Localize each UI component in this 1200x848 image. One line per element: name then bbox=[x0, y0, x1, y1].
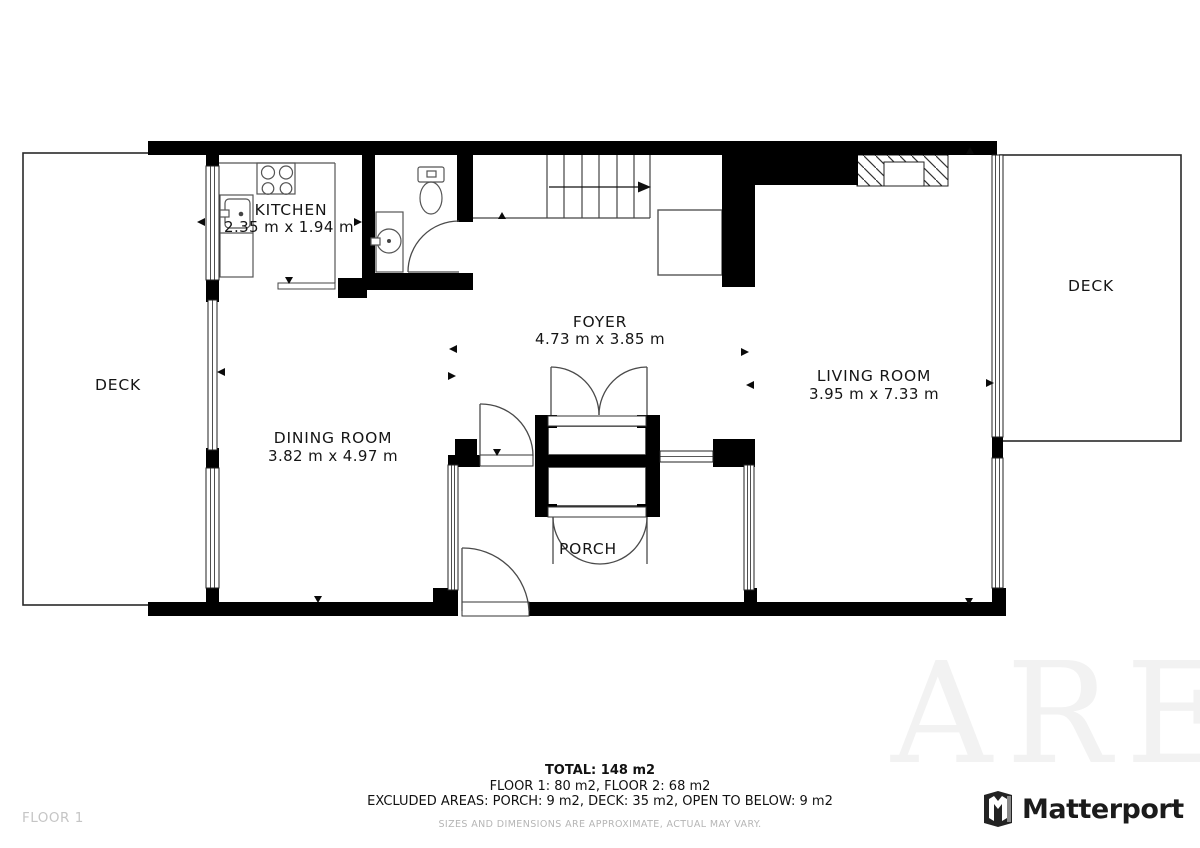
matterport-m-icon bbox=[982, 791, 1014, 827]
toilet-icon bbox=[418, 167, 444, 214]
bathroom-fixtures bbox=[371, 167, 444, 272]
bathroom-sink-icon bbox=[371, 212, 403, 272]
matterport-wordmark: Matterport bbox=[1022, 794, 1184, 825]
dims-living-room: 3.95 m x 7.33 m bbox=[809, 385, 939, 403]
total-area: TOTAL: 148 m2 bbox=[0, 764, 1200, 778]
closet bbox=[658, 210, 722, 275]
label-dining-room: DINING ROOM bbox=[274, 429, 393, 447]
dims-dining-room: 3.82 m x 4.97 m bbox=[268, 447, 398, 465]
dims-foyer: 4.73 m x 3.85 m bbox=[535, 330, 665, 348]
deck-right-outline bbox=[1000, 155, 1181, 441]
stairs bbox=[472, 155, 651, 218]
label-kitchen: KITCHEN bbox=[255, 201, 328, 219]
floor-plan: ARE bbox=[0, 0, 1200, 848]
label-foyer: FOYER bbox=[573, 313, 627, 331]
label-porch: PORCH bbox=[559, 540, 617, 558]
kitchen-sink-icon bbox=[220, 195, 253, 277]
label-deck-right: DECK bbox=[1068, 277, 1114, 295]
floorplan-page: { "plan": { "floor_label": "FLOOR 1", "r… bbox=[0, 0, 1200, 848]
stove-icon bbox=[257, 163, 295, 194]
dims-kitchen: 2.35 m x 1.94 m bbox=[224, 218, 354, 236]
fireplace-hatch bbox=[857, 155, 948, 186]
label-living-room: LIVING ROOM bbox=[817, 367, 931, 385]
floor-label: FLOOR 1 bbox=[22, 810, 84, 826]
stairs-up-arrow-icon bbox=[638, 182, 651, 193]
label-deck-left: DECK bbox=[95, 376, 141, 394]
matterport-logo: Matterport bbox=[982, 791, 1184, 827]
